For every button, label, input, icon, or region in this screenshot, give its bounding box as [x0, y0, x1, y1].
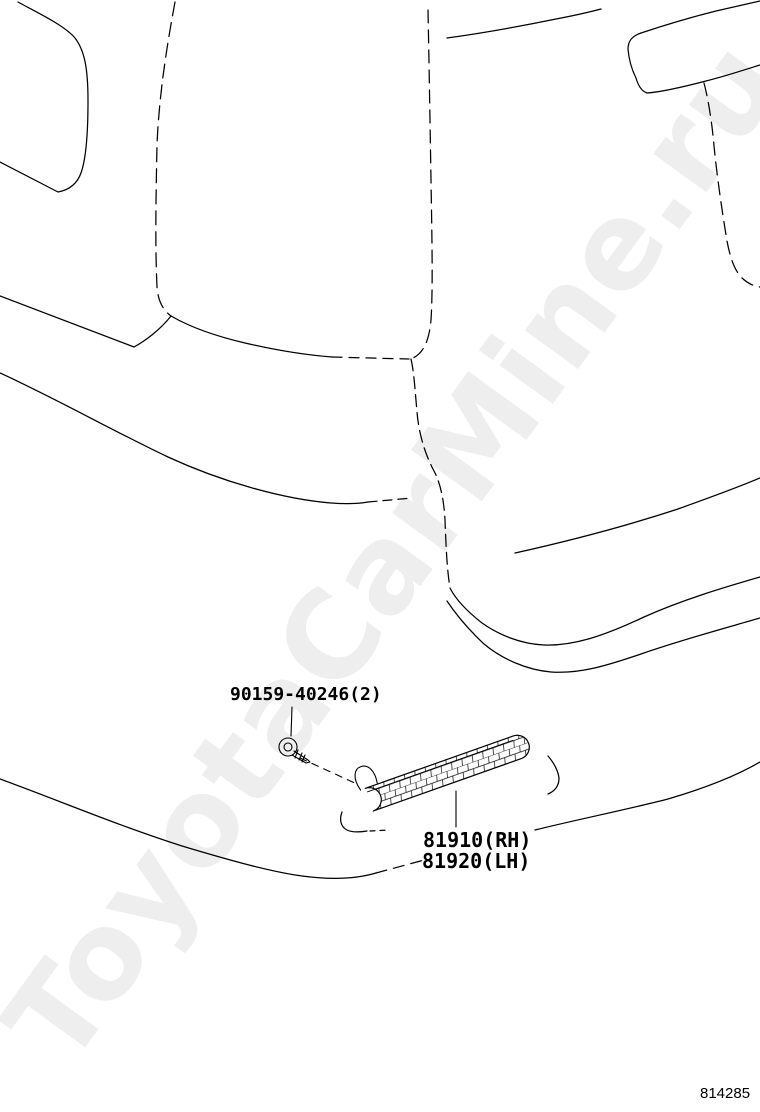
tailgate-left-edge: [411, 10, 432, 359]
parts-diagram: ToyotaCarMine.ru: [0, 0, 760, 1112]
tailgate-right-edge: [704, 83, 760, 287]
part-number-label-reflector-lh: 81920(LH): [422, 851, 530, 872]
bumper-recess-hook-right: [548, 756, 559, 794]
bumper-top-edge-left: [171, 316, 332, 357]
bumper-seam-upper: [450, 577, 760, 645]
tailgate-left-corner-edge: [411, 359, 450, 588]
bumper-recess-hook-left: [341, 812, 367, 832]
screw-head-outer: [279, 738, 297, 756]
part-number-label-reflector-rh: 81910(RH): [423, 830, 531, 851]
tailgate-garnish-line: [515, 478, 760, 553]
vehicle-line-art: [0, 0, 760, 1112]
roof-spoiler-line: [447, 9, 601, 38]
reflector-part: [352, 711, 533, 813]
screw-shank: [292, 750, 310, 763]
body-side-lower-edge: [0, 296, 171, 347]
reflector-lens: [365, 732, 532, 811]
bumper-seam-lower: [447, 601, 760, 672]
rear-bumper: [0, 577, 760, 878]
bumper-crease-right: [535, 762, 760, 830]
bumper-recess-dash: [370, 830, 389, 831]
bumper-top-edge-left-hidden: [332, 357, 409, 359]
rear-window-band: [628, 1, 760, 93]
body-side-crease-end: [368, 498, 412, 502]
vehicle-outline: [0, 1, 760, 588]
screw-icon: [279, 738, 310, 763]
diagram-number: 814285: [700, 1085, 750, 1102]
screw-label-leader: [291, 707, 292, 736]
quarter-window-outline: [0, 2, 88, 192]
bumper-bottom-edge-dashed: [376, 860, 424, 873]
body-side-crease: [0, 373, 368, 504]
bumper-bottom-edge: [0, 779, 376, 878]
screw-head-inner: [284, 743, 292, 751]
d-pillar-line: [156, 2, 175, 316]
part-number-label-screw: 90159-40246(2): [230, 686, 382, 705]
